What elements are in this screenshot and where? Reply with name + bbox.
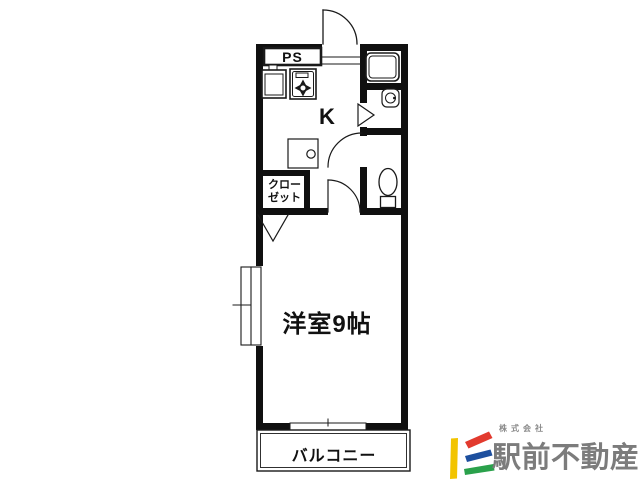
floor-plan-page: { "floor_plan": { "room_labels": { "pipe… <box>0 0 640 480</box>
closet-label-line2: ゼット <box>268 192 301 205</box>
wall-right <box>401 51 408 430</box>
company-prefix-label: 株式会社 <box>499 423 547 434</box>
washing-machine-space-icon <box>288 139 318 168</box>
wall-toilet-bottom <box>360 208 408 215</box>
bathtub-icon <box>366 53 399 81</box>
wall-bottom-right <box>366 423 408 430</box>
company-name-label: 駅前不動産 <box>492 434 640 476</box>
pipe-space-label: PS <box>263 47 322 66</box>
sliding-door-icon <box>290 419 366 431</box>
closet-label-line1: クロー <box>268 179 301 192</box>
interior-door-swing-icon <box>328 180 360 212</box>
wall-bath-bottom <box>360 83 408 90</box>
wall-washroom-toilet-divider <box>360 128 408 135</box>
wall-mainroom-top <box>256 208 328 215</box>
balcony-label: バルコニー <box>292 442 377 466</box>
window-icon <box>233 266 263 346</box>
logo-bar-red <box>465 432 493 449</box>
logo-bar-green <box>464 464 495 475</box>
toilet-door-swing-icon <box>328 133 362 167</box>
toilet-icon <box>379 169 397 208</box>
logo-bar-blue <box>465 450 493 463</box>
kitchen-sink-icon <box>262 65 286 98</box>
wall-toilet-left <box>360 167 367 215</box>
floor-plan-graphic <box>0 0 640 480</box>
company-logo-mark <box>450 432 495 480</box>
kitchen-label: K <box>319 104 335 130</box>
washroom-door-mark-icon <box>358 104 374 126</box>
wall-bottom-left <box>256 423 290 430</box>
wall-left-lower <box>256 344 263 430</box>
washbasin-icon <box>382 89 399 107</box>
entrance-door-swing-icon <box>322 10 360 64</box>
closet-label: クロー ゼット <box>264 175 305 209</box>
gas-stove-icon <box>290 69 316 99</box>
logo-bar-yellow <box>450 438 458 479</box>
wall-top-right <box>360 44 408 51</box>
western-room-label: 洋室9帖 <box>282 304 371 339</box>
